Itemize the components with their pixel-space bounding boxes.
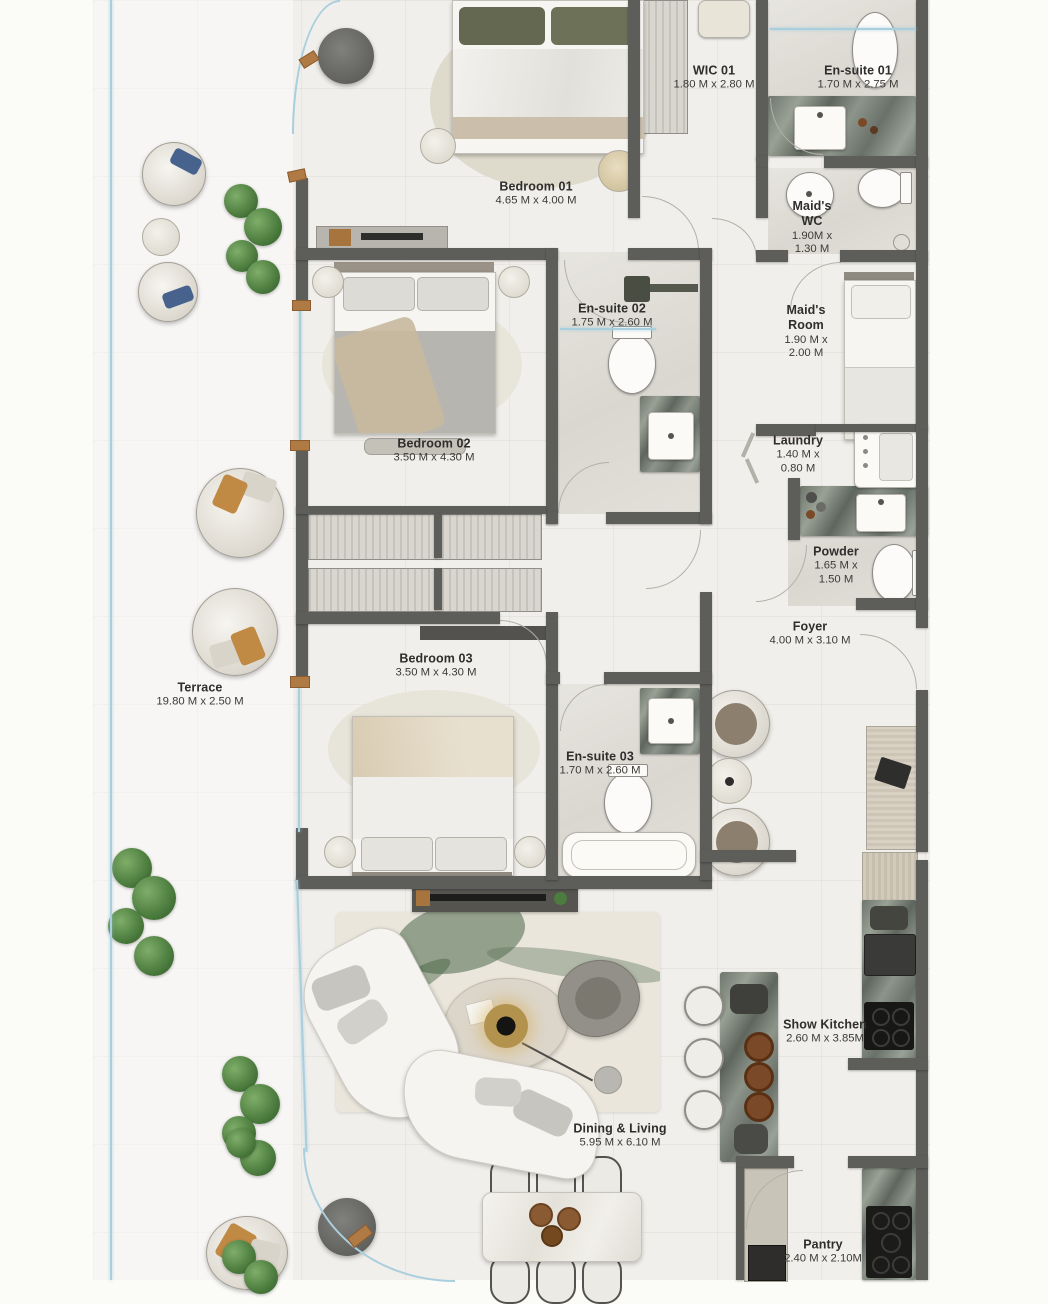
wall <box>296 612 500 624</box>
burner <box>892 1212 910 1230</box>
kitchen-sink <box>870 906 908 930</box>
room-label-terrace: Terrace 19.80 M x 2.50 M <box>132 680 268 709</box>
terrace-side-table <box>142 218 180 256</box>
room-label-pantry: Pantry 2.40 M x 2.10M <box>763 1237 883 1266</box>
shower-drain <box>893 234 910 251</box>
wall <box>736 1156 794 1168</box>
decor-box <box>329 229 351 246</box>
plant <box>244 1260 278 1294</box>
plant <box>226 1128 256 1158</box>
copper-bowl <box>744 1062 774 1092</box>
wall <box>788 478 800 540</box>
oven <box>864 934 916 976</box>
window-sill <box>290 440 310 451</box>
burner <box>892 1008 910 1026</box>
sink <box>856 494 906 532</box>
shower-bar <box>650 284 698 292</box>
plate <box>557 1207 581 1231</box>
sofa-cushion <box>474 1077 521 1107</box>
wall <box>736 1168 744 1280</box>
dark-bowl <box>734 1124 768 1154</box>
bar-stool <box>684 1038 724 1078</box>
decor <box>725 777 734 786</box>
room-label-bedroom-03: Bedroom 03 3.50 M x 4.30 M <box>361 651 511 680</box>
floor-plan: Bedroom 01 4.65 M x 4.00 M WIC 01 1.80 M… <box>0 0 1048 1280</box>
tv-console <box>412 886 578 912</box>
copper-bowl <box>744 1092 774 1122</box>
foyer-desk <box>866 726 918 850</box>
kitchen-island <box>720 972 778 1162</box>
decor <box>816 502 826 512</box>
shower-head <box>624 276 650 302</box>
kitchen-counter-wood <box>862 852 918 902</box>
dial <box>863 463 868 468</box>
corridor-closet-bottom <box>308 568 542 612</box>
burner <box>872 1212 890 1230</box>
wall <box>546 512 558 524</box>
room-label-show-kitchen: Show Kitchen 2.60 M x 3.85M <box>770 1017 880 1046</box>
wall <box>546 612 558 880</box>
terrace-chair <box>138 262 198 322</box>
pillow <box>361 837 433 871</box>
plant <box>134 936 174 976</box>
bar-stool <box>684 1090 724 1130</box>
wall <box>848 1156 928 1168</box>
foyer-side-table <box>706 758 752 804</box>
bathtub-inner <box>571 840 687 870</box>
wall <box>700 248 712 524</box>
room-label-bedroom-01: Bedroom 01 4.65 M x 4.00 M <box>461 179 611 208</box>
toilet <box>872 544 916 602</box>
terrace-lounge-chair <box>192 588 278 676</box>
bed-02-headboard <box>334 262 494 272</box>
plate <box>541 1225 563 1247</box>
bedside-table <box>420 128 456 164</box>
dial <box>863 435 868 440</box>
chair-cushion <box>161 284 195 309</box>
faucet <box>806 191 812 197</box>
maids-bed-headboard <box>844 272 914 280</box>
room-label-dining-living: Dining & Living 5.95 M x 6.10 M <box>550 1121 690 1150</box>
wall <box>916 430 928 628</box>
window-sill <box>290 676 310 688</box>
bedroom-01-bed <box>452 0 644 154</box>
faucet <box>668 718 674 724</box>
pillow <box>851 285 911 319</box>
island-sink <box>730 984 768 1014</box>
burner <box>892 1029 910 1047</box>
decor-box <box>416 890 430 906</box>
sink <box>648 412 694 460</box>
toilet <box>608 334 656 394</box>
faucet <box>668 433 674 439</box>
washing-machine <box>854 424 920 488</box>
wall <box>546 672 560 684</box>
bedroom-03-bed <box>352 716 514 876</box>
wall <box>604 672 712 684</box>
bedroom-02-bed <box>334 272 496 434</box>
room-label-ensuite-03: En-suite 03 1.70 M x 2.60 M <box>540 749 660 778</box>
room-label-foyer: Foyer 4.00 M x 3.10 M <box>745 619 875 648</box>
terrace-chair <box>142 142 206 206</box>
wall <box>756 168 768 218</box>
wall <box>296 178 308 250</box>
wall <box>296 446 308 678</box>
pillow <box>435 837 507 871</box>
dial <box>863 449 868 454</box>
terrace-lounge-chair <box>196 468 284 558</box>
wall <box>628 0 640 218</box>
burner <box>881 1233 901 1253</box>
wall <box>546 248 558 524</box>
room-label-bedroom-02: Bedroom 02 3.50 M x 4.30 M <box>359 436 509 465</box>
wall <box>916 690 928 852</box>
bedroom-03-window <box>298 688 300 832</box>
bed-throw <box>453 117 643 139</box>
terrace-railing-glass <box>110 0 112 1280</box>
pillow <box>343 277 415 311</box>
decor <box>858 118 867 127</box>
wall <box>824 156 928 168</box>
wall <box>848 1058 928 1070</box>
bedside-table <box>514 836 546 868</box>
wall <box>606 512 712 524</box>
room-label-ensuite-01: En-suite 01 1.70 M x 2.75 M <box>798 63 918 92</box>
bedroom-02-window <box>299 310 301 440</box>
room-label-maids-room: Maid's Room 1.90 M x 2.00 M <box>774 303 838 361</box>
wall <box>840 250 928 262</box>
dining-table <box>482 1192 642 1262</box>
room-label-powder: Powder 1.65 M x 1.50 M <box>802 545 870 588</box>
closet-divider <box>434 568 442 610</box>
wall <box>700 592 712 880</box>
tv <box>361 233 423 240</box>
pillow <box>459 7 545 45</box>
wic-bench <box>698 0 750 38</box>
burner <box>892 1256 910 1274</box>
plant <box>244 208 282 246</box>
room-label-laundry: Laundry 1.40 M x 0.80 M <box>766 434 830 477</box>
plant <box>108 908 144 944</box>
laptop <box>874 757 912 790</box>
wall <box>296 506 546 514</box>
toilet <box>604 772 652 834</box>
plant <box>246 260 280 294</box>
wall <box>756 156 768 168</box>
faucet <box>878 499 884 505</box>
soundbar <box>428 894 546 901</box>
decor <box>806 492 817 503</box>
wall <box>296 876 712 889</box>
plant-pot <box>554 892 567 905</box>
decor <box>806 510 815 519</box>
duvet <box>353 777 513 839</box>
window-sill <box>292 300 311 311</box>
pendant-lamp <box>484 1004 528 1048</box>
wall <box>296 248 558 260</box>
chair-cushion <box>715 703 757 745</box>
pillow <box>551 7 635 45</box>
sink <box>648 698 694 744</box>
room-label-wic-01: WIC 01 1.80 M x 2.80 M <box>654 63 774 92</box>
toilet-tank <box>900 172 912 204</box>
pillow <box>417 277 489 311</box>
foyer-tub-chair <box>702 808 770 876</box>
plate <box>529 1203 553 1227</box>
duvet <box>453 49 643 119</box>
maids-bed <box>844 280 916 440</box>
bedside-table <box>498 266 530 298</box>
room-label-maids-wc: Maid's WC 1.90M x 1.30 M <box>782 199 842 257</box>
bathtub <box>562 832 696 878</box>
toilet <box>858 168 906 208</box>
armchair-seat <box>570 972 626 1025</box>
bedside-table <box>324 836 356 868</box>
bedside-table <box>312 266 344 298</box>
bed-throw <box>353 717 513 781</box>
shower-glass <box>770 28 916 30</box>
wall <box>816 424 928 432</box>
wall <box>916 860 928 1280</box>
glass-side-table <box>594 1066 622 1094</box>
corridor-closet-top <box>308 514 542 560</box>
room-label-ensuite-02: En-suite 02 1.75 M x 2.60 M <box>552 301 672 330</box>
decor <box>870 126 878 134</box>
washer-lid <box>879 433 913 481</box>
closet-divider <box>434 514 442 558</box>
wall <box>700 850 796 862</box>
bar-stool <box>684 986 724 1026</box>
wall <box>296 828 308 882</box>
